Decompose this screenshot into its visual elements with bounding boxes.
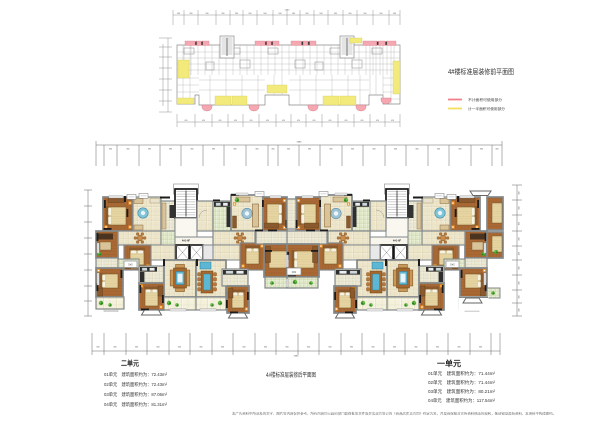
svg-text:360: 360 bbox=[415, 149, 418, 151]
svg-text:360: 360 bbox=[199, 347, 202, 349]
svg-text:360: 360 bbox=[135, 347, 138, 349]
svg-text:04单元 建筑面积约为：81.31m²: 04单元 建筑面积约为：81.31m² bbox=[104, 401, 167, 408]
svg-text:360: 360 bbox=[479, 347, 482, 349]
svg-text:D#2: D#2 bbox=[128, 264, 133, 267]
svg-text:360: 360 bbox=[264, 347, 267, 349]
svg-text:360: 360 bbox=[271, 149, 274, 151]
svg-text:420: 420 bbox=[297, 120, 300, 122]
svg-text:03单元 建筑面积约为：80.21m²: 03单元 建筑面积约为：80.21m² bbox=[428, 388, 495, 395]
svg-text:430: 430 bbox=[519, 266, 521, 269]
svg-text:360: 360 bbox=[372, 149, 375, 151]
svg-text:360: 360 bbox=[371, 347, 374, 349]
svg-text:02单元 建筑面积约为：72.43m²: 02单元 建筑面积约为：72.43m² bbox=[104, 381, 167, 388]
svg-text:360: 360 bbox=[156, 347, 159, 349]
svg-text:4#1-6F: 4#1-6F bbox=[182, 239, 191, 243]
svg-text:360: 360 bbox=[457, 347, 460, 349]
svg-text:420: 420 bbox=[312, 120, 315, 122]
svg-text:360: 360 bbox=[328, 347, 331, 349]
svg-text:计一半面积可使用部分: 计一半面积可使用部分 bbox=[468, 106, 505, 111]
svg-text:580: 580 bbox=[348, 13, 351, 15]
svg-text:360: 360 bbox=[350, 347, 353, 349]
svg-text:580: 580 bbox=[305, 13, 308, 15]
svg-text:420: 420 bbox=[234, 120, 237, 122]
svg-text:4#1-6F: 4#1-6F bbox=[393, 239, 402, 243]
svg-text:D#2: D#2 bbox=[292, 271, 297, 274]
svg-text:不计面积可使用部分: 不计面积可使用部分 bbox=[468, 97, 502, 102]
svg-text:580: 580 bbox=[379, 13, 382, 15]
svg-text:360: 360 bbox=[329, 149, 332, 151]
svg-text:580: 580 bbox=[263, 13, 266, 15]
svg-text:360: 360 bbox=[436, 347, 439, 349]
svg-text:420: 420 bbox=[376, 120, 379, 122]
svg-text:360: 360 bbox=[495, 149, 498, 151]
svg-text:360: 360 bbox=[148, 149, 151, 151]
svg-text:4#楼标准层装修后平面图: 4#楼标准层装修后平面图 bbox=[266, 371, 316, 379]
svg-text:430: 430 bbox=[519, 206, 521, 209]
svg-text:360: 360 bbox=[212, 149, 215, 151]
svg-text:D#2: D#2 bbox=[450, 264, 455, 267]
svg-text:420: 420 bbox=[360, 120, 363, 122]
svg-text:360: 360 bbox=[169, 149, 172, 151]
svg-text:01单元 建筑面积约为：71.44m²: 01单元 建筑面积约为：71.44m² bbox=[428, 370, 495, 377]
svg-text:本广告资料中所涉及的文字、图片等内容仅供参考，所有内容均以政: 本广告资料中所涉及的文字、图片等内容仅供参考，所有内容均以政府部门最终批准文件及… bbox=[232, 412, 556, 416]
svg-text:430: 430 bbox=[519, 252, 521, 255]
svg-text:430: 430 bbox=[519, 191, 521, 194]
svg-text:430: 430 bbox=[519, 237, 521, 240]
svg-text:420: 420 bbox=[184, 120, 187, 122]
svg-text:360: 360 bbox=[285, 347, 288, 349]
svg-text:4#楼标准层装修前平面图: 4#楼标准层装修前平面图 bbox=[448, 67, 514, 76]
svg-text:420: 420 bbox=[282, 120, 285, 122]
svg-text:360: 360 bbox=[458, 149, 461, 151]
svg-text:360: 360 bbox=[113, 347, 116, 349]
svg-text:420: 420 bbox=[202, 120, 205, 122]
svg-text:360: 360 bbox=[190, 149, 193, 151]
svg-text:580: 580 bbox=[189, 13, 192, 15]
svg-text:二单元: 二单元 bbox=[121, 359, 139, 368]
svg-text:580: 580 bbox=[319, 13, 322, 15]
svg-text:360: 360 bbox=[308, 149, 311, 151]
svg-text:360: 360 bbox=[480, 149, 483, 151]
svg-text:360: 360 bbox=[96, 347, 99, 349]
svg-text:03单元 建筑面积约为：87.06m²: 03单元 建筑面积约为：87.06m² bbox=[104, 391, 167, 398]
svg-text:580: 580 bbox=[278, 13, 281, 15]
svg-text:一单元: 一单元 bbox=[437, 359, 462, 368]
svg-text:360: 360 bbox=[178, 347, 181, 349]
svg-text:420: 420 bbox=[266, 120, 269, 122]
svg-text:360: 360 bbox=[414, 347, 417, 349]
svg-text:430: 430 bbox=[519, 295, 521, 298]
svg-text:01单元 建筑面积约为：72.43m²: 01单元 建筑面积约为：72.43m² bbox=[104, 371, 167, 378]
svg-text:360: 360 bbox=[394, 149, 397, 151]
svg-text:580: 580 bbox=[393, 13, 396, 15]
svg-text:580: 580 bbox=[235, 13, 238, 15]
svg-text:360: 360 bbox=[109, 149, 112, 151]
svg-text:580: 580 bbox=[363, 13, 366, 15]
svg-text:360: 360 bbox=[255, 149, 258, 151]
svg-text:420: 420 bbox=[344, 120, 347, 122]
svg-text:580: 580 bbox=[248, 13, 251, 15]
svg-text:360: 360 bbox=[437, 149, 440, 151]
svg-text:430: 430 bbox=[519, 281, 521, 284]
svg-text:360: 360 bbox=[287, 149, 290, 151]
svg-text:360: 360 bbox=[242, 347, 245, 349]
svg-text:420: 420 bbox=[218, 120, 221, 122]
svg-text:360: 360 bbox=[351, 149, 354, 151]
svg-text:360: 360 bbox=[233, 149, 236, 151]
svg-text:580: 580 bbox=[177, 13, 180, 15]
svg-text:420: 420 bbox=[328, 120, 331, 122]
svg-text:360: 360 bbox=[221, 347, 224, 349]
svg-text:580: 580 bbox=[334, 13, 337, 15]
svg-text:360: 360 bbox=[307, 347, 310, 349]
svg-text:580: 580 bbox=[221, 13, 224, 15]
svg-text:420: 420 bbox=[249, 120, 252, 122]
svg-text:580: 580 bbox=[205, 13, 208, 15]
svg-text:580: 580 bbox=[292, 13, 295, 15]
svg-text:360: 360 bbox=[393, 347, 396, 349]
svg-text:430: 430 bbox=[519, 222, 521, 225]
svg-text:02单元 建筑面积约为：71.44m²: 02单元 建筑面积约为：71.44m² bbox=[428, 379, 495, 386]
svg-text:420: 420 bbox=[391, 120, 394, 122]
svg-text:360: 360 bbox=[126, 149, 129, 151]
svg-text:430: 430 bbox=[519, 308, 521, 311]
svg-text:04单元 建筑面积约为：117.54m²: 04单元 建筑面积约为：117.54m² bbox=[428, 397, 495, 404]
